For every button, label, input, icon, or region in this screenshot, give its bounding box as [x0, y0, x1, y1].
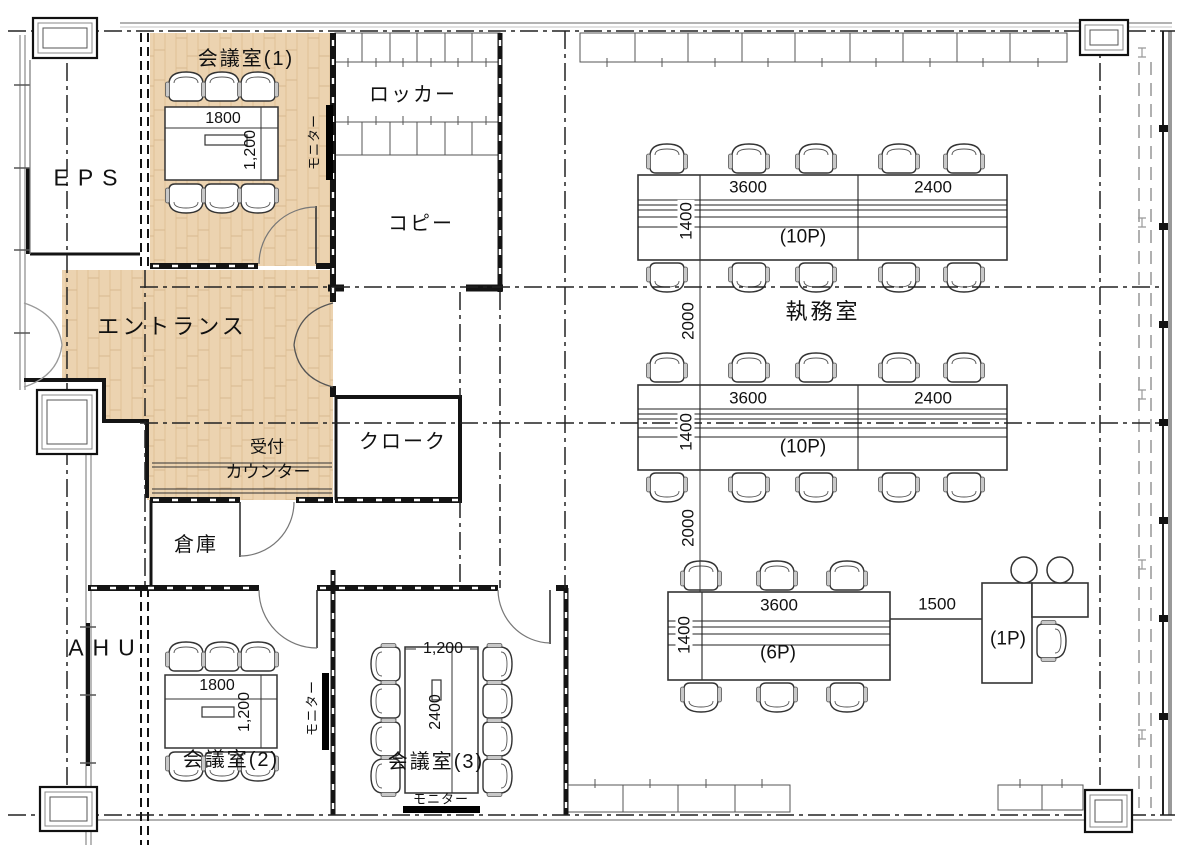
stool [1047, 557, 1073, 583]
island-top-depth: 1400 [678, 200, 695, 242]
meeting-room-2-monitor-label: モニター [306, 680, 319, 736]
island-bottom-width-main: 3600 [760, 597, 798, 614]
meeting-room-3-label: 会議室(3) [388, 752, 484, 772]
meeting-room-3-table-depth: 2400 [428, 694, 444, 730]
island-middle-capacity: (10P) [780, 438, 826, 457]
meeting-room-1-label: 会議室(1) [198, 49, 294, 69]
entry-double-door-exterior [24, 303, 62, 387]
island-middle-depth: 1400 [678, 411, 695, 453]
meeting-room-1-table-depth: 1,200 [243, 130, 259, 170]
reception-label-line1: 受付 [250, 439, 284, 456]
island-top-capacity: (10P) [780, 228, 826, 247]
meeting-room-2-door [259, 590, 317, 648]
meeting-room-2-table-width: 1800 [199, 678, 235, 694]
office-room-label: 執務室 [785, 301, 860, 323]
meeting-room-3-door [498, 590, 550, 644]
wall-cabinets-bottom [568, 779, 1083, 812]
column [1080, 20, 1128, 55]
manager-desk [982, 557, 1088, 683]
manager-desk-capacity: (1P) [990, 630, 1026, 649]
cloak-room-label: クローク [359, 432, 447, 452]
entrance-floor-step [104, 380, 333, 421]
desk-island-bottom [668, 561, 890, 712]
stool [1011, 557, 1037, 583]
meeting-room-2-label: 会議室(2) [183, 750, 279, 770]
island-top-width-side: 2400 [914, 179, 952, 196]
column [33, 18, 97, 58]
ahu-shaft-wall [141, 588, 148, 845]
meeting-room-3-table-width: 1,200 [423, 641, 463, 657]
island-top-width-main: 3600 [729, 179, 767, 196]
column [1085, 790, 1132, 832]
island-bottom-depth: 1400 [676, 614, 693, 656]
reception-floor [147, 421, 333, 500]
island-bottom-capacity: (6P) [760, 644, 796, 663]
monitor-bar [403, 806, 480, 813]
gap-to-manager-dimension: 1500 [918, 596, 956, 613]
column [40, 787, 97, 831]
eps-shaft-wall [141, 33, 148, 270]
meeting-room-1-monitor-label: モニター [308, 114, 321, 170]
island-middle-width-side: 2400 [914, 390, 952, 407]
blind-rail-dashed-lines [1139, 62, 1151, 808]
ahu-label: AHU [68, 637, 144, 660]
floor-plan: 会議室(1) 1800 1,200 モニター ロッカー コピー EPS エントラ… [0, 0, 1185, 845]
storage-room-label: 倉庫 [174, 535, 218, 555]
storage-door [240, 502, 294, 557]
floor-plan-drawing [0, 0, 1185, 845]
monitor-bar [322, 673, 329, 750]
monitor-bar [326, 105, 333, 180]
copy-room-label: コピー [388, 214, 454, 234]
meeting-room-2-table-depth: 1,200 [237, 692, 253, 732]
aisle-dimension-1: 2000 [680, 302, 697, 340]
meeting-room-1-table-width: 1800 [205, 111, 241, 127]
column [37, 390, 97, 454]
eps-label: EPS [53, 167, 126, 190]
meeting-room-3-monitor-label: モニター [413, 793, 469, 806]
locker-room-label: ロッカー [369, 85, 457, 105]
aisle-dimension-2: 2000 [680, 509, 697, 547]
island-middle-width-main: 3600 [729, 390, 767, 407]
reception-label-line2: カウンター [226, 464, 311, 481]
entrance-label: エントランス [97, 316, 247, 338]
manager-chair [1037, 621, 1066, 662]
wall-cabinets-top [580, 33, 1067, 67]
